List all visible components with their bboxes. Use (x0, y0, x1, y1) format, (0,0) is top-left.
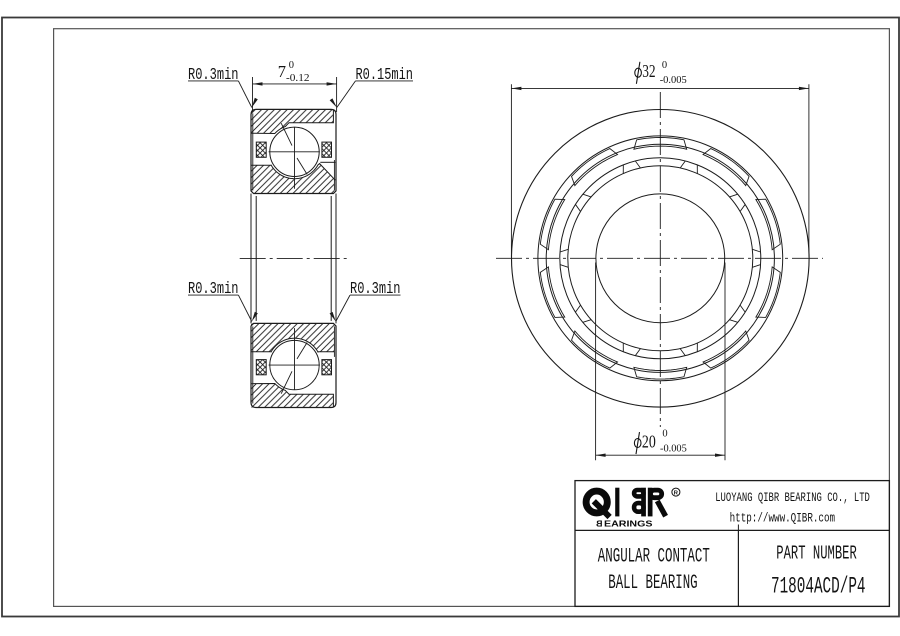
svg-text:BALL BEARING: BALL BEARING (608, 572, 697, 595)
svg-text:71804ACD/P4: 71804ACD/P4 (771, 574, 866, 600)
svg-text:LUOYANG QIBR BEARING CO., LTD: LUOYANG QIBR BEARING CO., LTD (715, 490, 870, 505)
svg-text:0: 0 (662, 60, 667, 71)
svg-text:B: B (596, 519, 603, 529)
svg-text:ANGULAR CONTACT: ANGULAR CONTACT (598, 546, 710, 569)
svg-text:32: 32 (642, 61, 655, 81)
svg-text:0: 0 (289, 60, 294, 71)
svg-text:7: 7 (278, 62, 286, 81)
svg-text:-0.12: -0.12 (286, 73, 310, 84)
svg-text:-0.005: -0.005 (660, 443, 687, 454)
svg-text:EARINGS: EARINGS (604, 519, 653, 529)
svg-text:-0.005: -0.005 (660, 75, 687, 86)
svg-text:PART NUMBER: PART NUMBER (776, 543, 857, 565)
svg-text:http://www.QIBR.com: http://www.QIBR.com (730, 510, 836, 525)
svg-text:20: 20 (642, 432, 656, 452)
svg-text:0: 0 (662, 428, 667, 439)
